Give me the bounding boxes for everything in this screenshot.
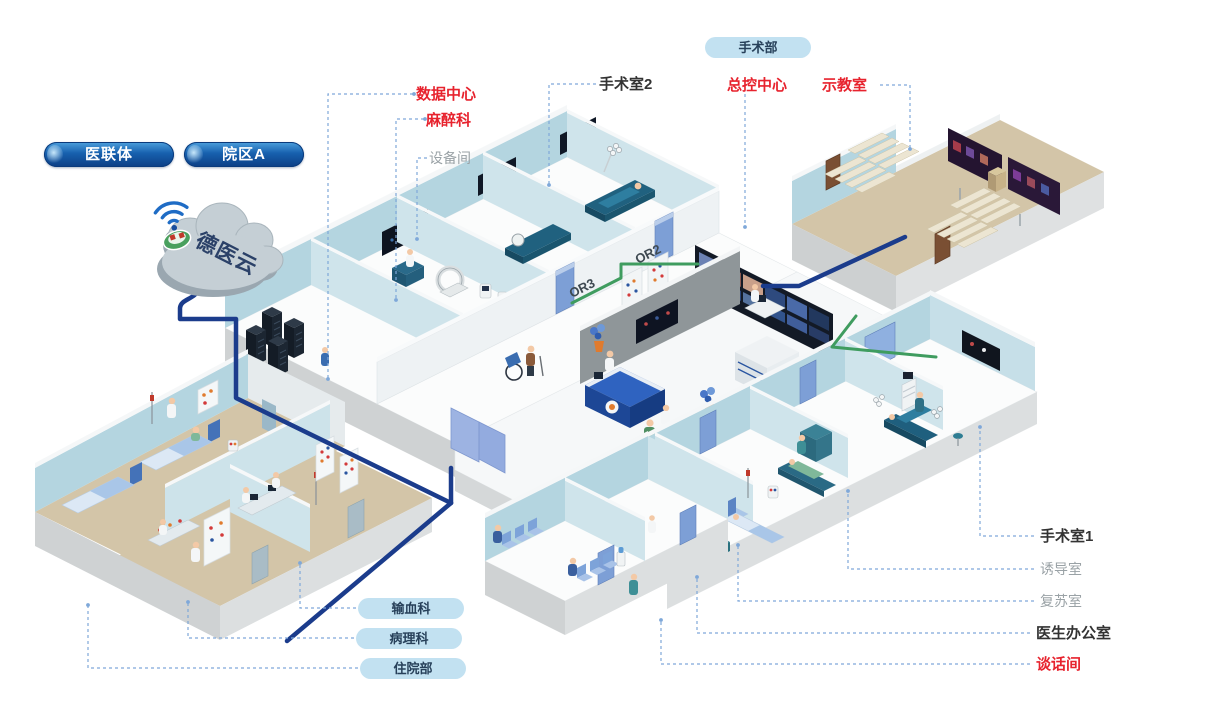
- label-anesthesiology: 麻醉科: [426, 113, 471, 128]
- leader-doctor-office: [697, 578, 1030, 633]
- patient-head: [635, 183, 642, 190]
- seated-patient: [493, 531, 502, 543]
- ward-nurse: [167, 404, 176, 418]
- badge-medical-network: 医联体: [44, 142, 174, 167]
- badge-campus-a: 院区A: [184, 142, 304, 167]
- label-demo-room: 示教室: [822, 78, 867, 93]
- leader-recovery: [738, 546, 1034, 601]
- demo-classroom-building: [792, 114, 1104, 312]
- podium: [988, 167, 1006, 192]
- standing-woman: [629, 580, 638, 595]
- induction-nurse: [797, 441, 806, 454]
- nurse-at-door: [648, 521, 656, 533]
- pill-pathology: 病理科: [356, 628, 462, 649]
- label-data-center: 数据中心: [416, 87, 476, 102]
- isometric-scene: OR3 OR2: [0, 0, 1215, 723]
- badge-surgery-department: 手术部: [705, 37, 811, 58]
- hospital-surgery-department-diagram: OR3 OR2: [0, 0, 1215, 723]
- label-operating-room-2: 手术室2: [599, 77, 652, 92]
- label-operating-room-1: 手术室1: [1040, 529, 1093, 544]
- receptionist-head: [607, 351, 614, 358]
- reception-monitor: [594, 372, 603, 379]
- pill-inpatient: 住院部: [360, 658, 466, 679]
- label-recovery-room: 复苏室: [1040, 594, 1082, 608]
- label-talk-room: 谈话间: [1036, 657, 1081, 672]
- transfusion-staff: [191, 548, 200, 562]
- surgeon-figure: [915, 398, 924, 412]
- label-master-control: 总控中心: [727, 78, 787, 93]
- ward-patient: [193, 427, 200, 434]
- label-equipment-room: 设备间: [429, 151, 471, 165]
- leader-talk-room: [661, 621, 1030, 664]
- pill-blood-transfusion: 输血科: [358, 598, 464, 619]
- seated-patient-2: [568, 564, 577, 576]
- ward-cart: [228, 440, 238, 451]
- wing-door-1: [700, 410, 716, 454]
- wing-door-2: [800, 360, 816, 404]
- label-doctor-office: 医生办公室: [1036, 626, 1111, 641]
- label-induction-room: 诱导室: [1040, 562, 1082, 576]
- receptionist-body: [605, 358, 614, 371]
